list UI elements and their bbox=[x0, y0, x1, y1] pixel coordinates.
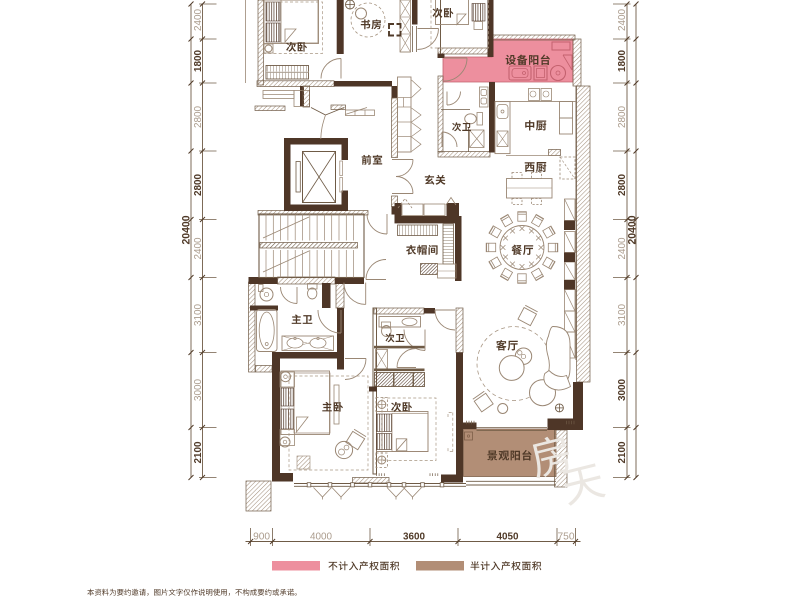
svg-text:1800: 1800 bbox=[192, 50, 204, 72]
svg-text:1800: 1800 bbox=[616, 50, 628, 72]
svg-text:2800: 2800 bbox=[616, 106, 628, 128]
svg-text:3600: 3600 bbox=[403, 531, 425, 543]
svg-text:2400: 2400 bbox=[616, 9, 628, 31]
svg-text:4050: 4050 bbox=[497, 531, 519, 543]
svg-text:4000: 4000 bbox=[310, 531, 332, 543]
svg-text:900: 900 bbox=[253, 531, 270, 543]
svg-text:3000: 3000 bbox=[616, 379, 628, 401]
svg-text:2800: 2800 bbox=[192, 174, 204, 196]
svg-text:2100: 2100 bbox=[192, 441, 204, 463]
svg-text:2800: 2800 bbox=[192, 106, 204, 128]
svg-text:3100: 3100 bbox=[192, 304, 204, 326]
svg-text:2400: 2400 bbox=[192, 9, 204, 31]
svg-text:2400: 2400 bbox=[192, 237, 204, 259]
svg-text:2100: 2100 bbox=[616, 441, 628, 463]
svg-text:20400: 20400 bbox=[626, 216, 638, 245]
svg-text:2800: 2800 bbox=[616, 174, 628, 196]
svg-text:3000: 3000 bbox=[192, 379, 204, 401]
svg-text:3100: 3100 bbox=[616, 304, 628, 326]
svg-text:750: 750 bbox=[558, 531, 575, 543]
svg-text:20400: 20400 bbox=[180, 216, 192, 245]
